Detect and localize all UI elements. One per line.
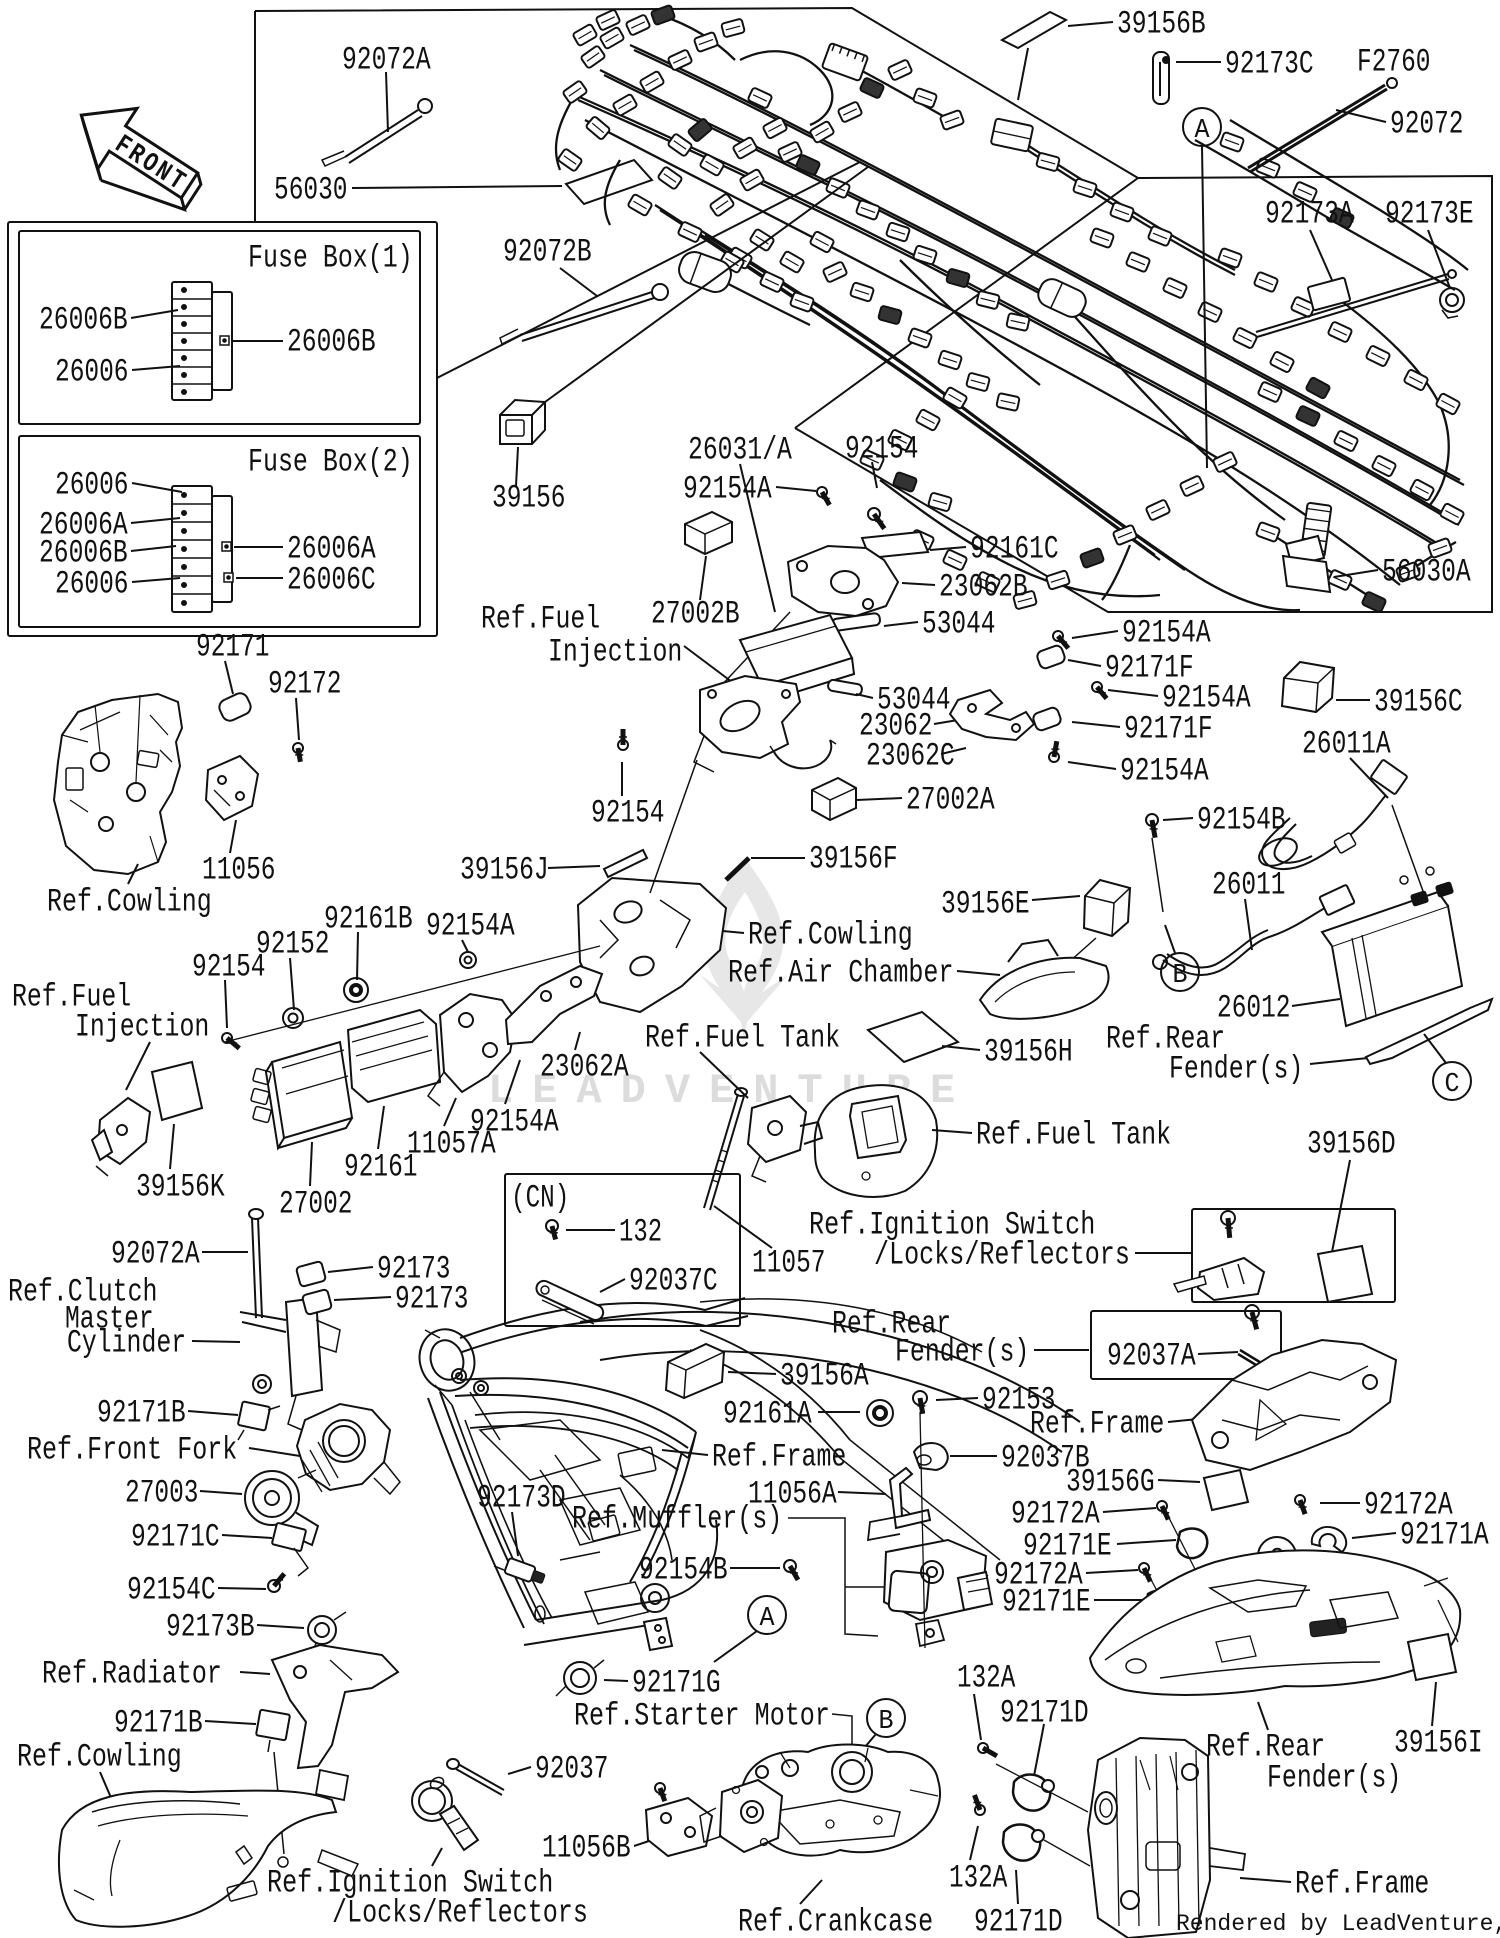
- svg-text:39156E: 39156E: [941, 886, 1030, 923]
- svg-text:C: C: [1445, 1070, 1460, 1100]
- svg-text:Ref.Fuel Tank: Ref.Fuel Tank: [645, 1020, 840, 1057]
- svg-text:A: A: [760, 1604, 776, 1634]
- svg-text:(CN): (CN): [511, 1180, 569, 1217]
- svg-text:26031/A: 26031/A: [688, 432, 793, 469]
- svg-text:132A: 132A: [957, 1660, 1016, 1697]
- svg-text:Fuse Box(2): Fuse Box(2): [248, 444, 413, 481]
- svg-text:39156: 39156: [492, 480, 566, 517]
- svg-text:92154B: 92154B: [639, 1552, 728, 1589]
- svg-text:23062C: 23062C: [866, 738, 955, 775]
- svg-text:92161C: 92161C: [970, 531, 1059, 568]
- svg-text:92154: 92154: [845, 431, 919, 468]
- svg-text:Ref.Frame: Ref.Frame: [1295, 1866, 1429, 1903]
- svg-text:92154A: 92154A: [683, 471, 772, 508]
- svg-text:39156C: 39156C: [1374, 684, 1463, 721]
- svg-text:39156A: 39156A: [780, 1358, 869, 1395]
- svg-text:26006C: 26006C: [287, 562, 376, 599]
- svg-text:26006B: 26006B: [39, 302, 128, 339]
- svg-text:92171B: 92171B: [97, 1395, 186, 1432]
- svg-text:92172: 92172: [268, 666, 342, 703]
- svg-text:53044: 53044: [922, 606, 996, 643]
- svg-text:92154B: 92154B: [1197, 802, 1286, 839]
- svg-text:Ref.Fuel Tank: Ref.Fuel Tank: [976, 1117, 1171, 1154]
- svg-text:39156B: 39156B: [1117, 6, 1206, 43]
- svg-text:92173D: 92173D: [477, 1480, 566, 1517]
- svg-text:92173A: 92173A: [1265, 196, 1354, 233]
- svg-text:92072A: 92072A: [111, 1236, 200, 1273]
- svg-text:92171E: 92171E: [1002, 1584, 1091, 1621]
- svg-text:26006: 26006: [55, 467, 129, 504]
- svg-text:39156I: 39156I: [1394, 1725, 1483, 1762]
- svg-text:56030: 56030: [274, 172, 348, 209]
- svg-text:Ref.Radiator: Ref.Radiator: [42, 1656, 222, 1693]
- svg-text:92171: 92171: [196, 629, 270, 666]
- svg-text:Ref.Cowling: Ref.Cowling: [47, 884, 212, 921]
- svg-text:B: B: [1173, 961, 1188, 991]
- svg-text:A: A: [1195, 116, 1211, 146]
- svg-text:92171A: 92171A: [1400, 1517, 1489, 1554]
- svg-text:Ref.Air Chamber: Ref.Air Chamber: [728, 955, 954, 992]
- svg-text:92154A: 92154A: [470, 1104, 559, 1141]
- svg-text:Ref.Frame: Ref.Frame: [712, 1439, 846, 1476]
- svg-text:Ref.Cowling: Ref.Cowling: [17, 1739, 182, 1776]
- svg-text:27002A: 27002A: [906, 782, 995, 819]
- svg-text:11057: 11057: [752, 1245, 826, 1282]
- svg-text:/Locks/Reflectors: /Locks/Reflectors: [874, 1237, 1130, 1274]
- svg-text:Ref.Fuel: Ref.Fuel: [481, 601, 600, 638]
- svg-text:26012: 26012: [1217, 990, 1291, 1027]
- svg-text:92072B: 92072B: [503, 234, 592, 271]
- svg-text:Ref.Crankcase: Ref.Crankcase: [738, 1904, 933, 1938]
- svg-text:92171G: 92171G: [632, 1665, 721, 1702]
- svg-text:132A: 132A: [949, 1860, 1008, 1897]
- svg-text:F2760: F2760: [1357, 44, 1431, 81]
- svg-text:39156J: 39156J: [460, 852, 549, 889]
- svg-text:26011A: 26011A: [1302, 726, 1391, 763]
- svg-text:Ref.Starter Motor: Ref.Starter Motor: [574, 1698, 830, 1735]
- svg-text:Fender(s): Fender(s): [1169, 1051, 1303, 1088]
- svg-text:Ref.Frame: Ref.Frame: [1030, 1406, 1164, 1443]
- svg-text:B: B: [879, 1707, 894, 1737]
- svg-text:92072: 92072: [1390, 106, 1464, 143]
- svg-text:92171D: 92171D: [974, 1904, 1063, 1938]
- svg-text:92037C: 92037C: [629, 1263, 718, 1300]
- svg-text:92154A: 92154A: [1122, 615, 1211, 652]
- svg-text:Fender(s): Fender(s): [1267, 1760, 1401, 1797]
- svg-text:Rendered by LeadVenture, Inc.: Rendered by LeadVenture, Inc.: [1176, 1911, 1500, 1937]
- svg-text:11056B: 11056B: [542, 1830, 631, 1867]
- svg-text:92154: 92154: [591, 795, 665, 832]
- svg-text:92171C: 92171C: [131, 1519, 220, 1556]
- svg-text:39156K: 39156K: [136, 1169, 225, 1206]
- svg-text:Cylinder: Cylinder: [67, 1325, 186, 1362]
- svg-text:92152: 92152: [256, 926, 330, 963]
- svg-text:92173: 92173: [395, 1281, 469, 1318]
- svg-text:27002B: 27002B: [651, 596, 740, 633]
- svg-text:92173E: 92173E: [1385, 196, 1474, 233]
- svg-text:/Locks/Reflectors: /Locks/Reflectors: [332, 1895, 588, 1932]
- svg-text:92161A: 92161A: [723, 1396, 812, 1433]
- svg-text:Fender(s): Fender(s): [895, 1334, 1029, 1371]
- svg-text:39156F: 39156F: [809, 841, 898, 878]
- svg-text:Injection: Injection: [75, 1009, 209, 1046]
- svg-text:92154A: 92154A: [426, 908, 515, 945]
- svg-text:39156D: 39156D: [1307, 1126, 1396, 1163]
- svg-text:92173B: 92173B: [166, 1609, 255, 1646]
- svg-text:92154: 92154: [192, 949, 266, 986]
- svg-text:56030A: 56030A: [1382, 554, 1471, 591]
- svg-text:26006: 26006: [55, 566, 129, 603]
- svg-text:92154C: 92154C: [127, 1572, 216, 1609]
- svg-text:26006B: 26006B: [287, 324, 376, 361]
- svg-text:92161B: 92161B: [324, 901, 413, 938]
- svg-text:132: 132: [619, 1214, 662, 1251]
- svg-text:Injection: Injection: [548, 634, 682, 671]
- svg-text:39156H: 39156H: [984, 1034, 1073, 1071]
- svg-text:92173C: 92173C: [1225, 46, 1314, 83]
- svg-text:23062B: 23062B: [939, 569, 1028, 606]
- svg-text:92154A: 92154A: [1120, 753, 1209, 790]
- svg-text:Ref.Front Fork: Ref.Front Fork: [27, 1432, 237, 1469]
- svg-text:92037: 92037: [535, 1751, 609, 1788]
- svg-text:92171B: 92171B: [114, 1705, 203, 1742]
- svg-text:92171F: 92171F: [1124, 711, 1213, 748]
- svg-text:Fuse Box(1): Fuse Box(1): [248, 240, 413, 277]
- svg-text:27002: 27002: [279, 1186, 353, 1223]
- svg-text:Ref.Cowling: Ref.Cowling: [748, 917, 913, 954]
- svg-text:26006: 26006: [55, 354, 129, 391]
- svg-text:11056: 11056: [202, 852, 276, 889]
- svg-text:26011: 26011: [1212, 867, 1286, 904]
- svg-text:11056A: 11056A: [748, 1476, 837, 1513]
- svg-text:92037A: 92037A: [1107, 1338, 1196, 1375]
- svg-text:27003: 27003: [125, 1475, 199, 1512]
- svg-text:23062A: 23062A: [540, 1049, 629, 1086]
